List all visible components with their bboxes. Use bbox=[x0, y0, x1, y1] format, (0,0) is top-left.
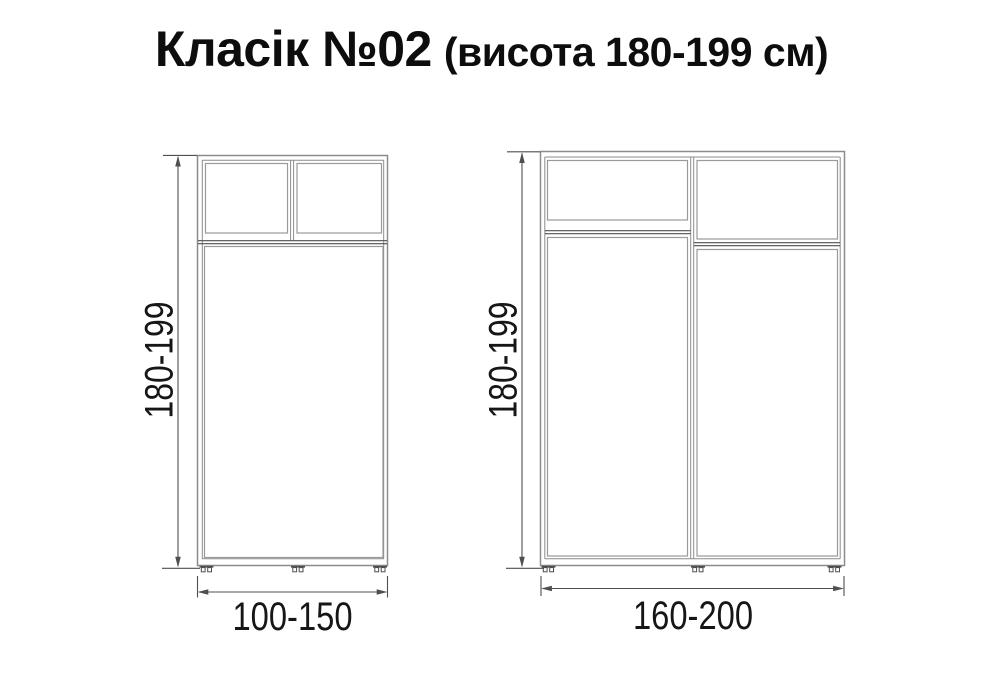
carcass-outline bbox=[198, 156, 388, 566]
arrow-up bbox=[175, 156, 181, 167]
width-dimension-label: 160-200 bbox=[633, 594, 753, 638]
technical-drawing: 180-199 100-150 180-199 bbox=[0, 0, 983, 700]
foot-glide bbox=[373, 566, 387, 572]
wardrobe-large: 180-199 160-200 bbox=[482, 152, 845, 639]
height-dimension-label: 180-199 bbox=[482, 302, 526, 419]
arrow-right bbox=[377, 589, 388, 594]
carcass-outline bbox=[541, 152, 845, 566]
foot-glide bbox=[291, 566, 305, 572]
height-dimension-label: 180-199 bbox=[138, 302, 182, 419]
foot-glide bbox=[691, 566, 705, 572]
arrow-down bbox=[519, 557, 525, 568]
arrow-right bbox=[833, 586, 844, 591]
arrow-left bbox=[541, 586, 552, 591]
foot-glide bbox=[828, 566, 842, 572]
arrow-up bbox=[519, 152, 525, 163]
wardrobe-small: 180-199 100-150 bbox=[138, 155, 388, 639]
arrow-down bbox=[175, 557, 181, 568]
width-dimension-label: 100-150 bbox=[233, 595, 353, 639]
foot-glide bbox=[200, 566, 214, 572]
arrow-left bbox=[198, 589, 209, 594]
